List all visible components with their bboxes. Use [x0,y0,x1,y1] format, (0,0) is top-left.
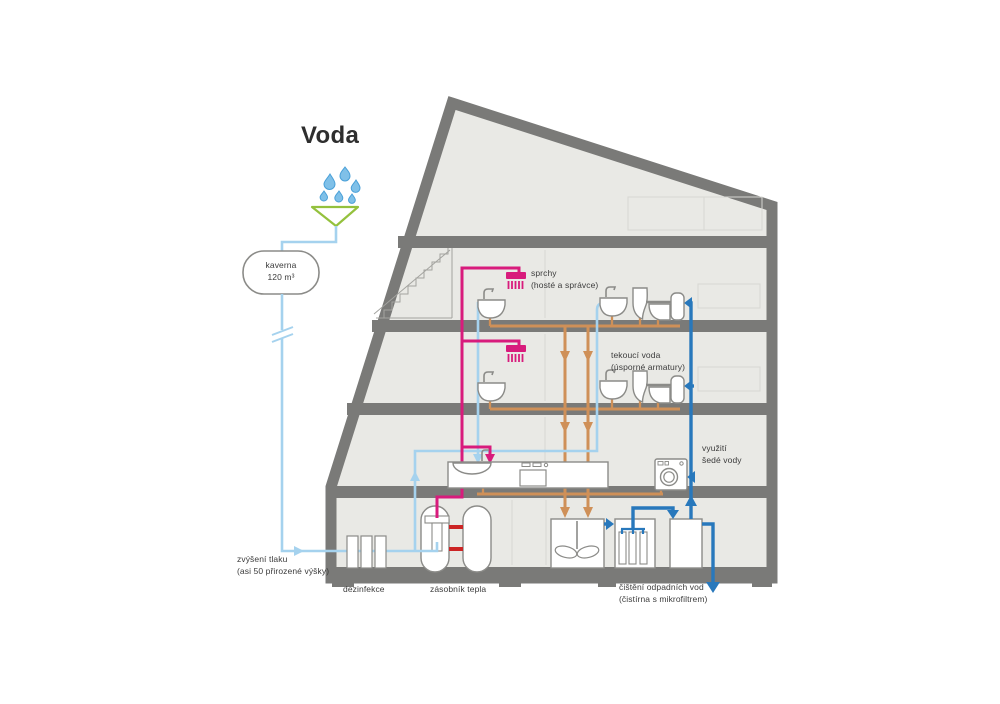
grey-water-use-label: využití šedé vody [702,443,742,467]
clean-water-tank [670,519,702,568]
running-water-label: tekoucí voda (úsporné armatury) [611,350,685,374]
waste-treatment-plant [551,519,702,568]
cavern-label: kaverna 120 m³ [243,260,319,284]
heat-tank-right [463,506,491,572]
floor-slab-attic [398,236,769,248]
funnel-to-cavern-pipe [282,226,336,252]
water-drops-icon [320,167,360,203]
pressure-boost-label: zvýšení tlaku (asi 50 přirozené výšky) [237,554,329,578]
waste-treatment-label: čištění odpadních vod (čistírna s mikrof… [619,582,707,606]
showers-label: sprchy (hosté a správce) [531,268,598,292]
floor-slab-bottom [326,567,772,579]
water-scheme-diagram: Voda kaverna 120 m³ sprchy (hosté a sprá… [0,0,1000,704]
microfilter-rods [619,532,647,564]
building-outline [331,103,772,578]
funnel-icon [312,207,358,226]
disinfection-filters [347,536,386,568]
washing-machine-icon [655,459,687,490]
disinfection-label: dezinfekce [343,584,385,596]
building-section [326,103,772,587]
diagram-canvas [0,0,1000,704]
diagram-title: Voda [301,122,359,150]
heat-storage-label: zásobník tepla [430,584,486,596]
grey-water-riser [689,303,691,519]
